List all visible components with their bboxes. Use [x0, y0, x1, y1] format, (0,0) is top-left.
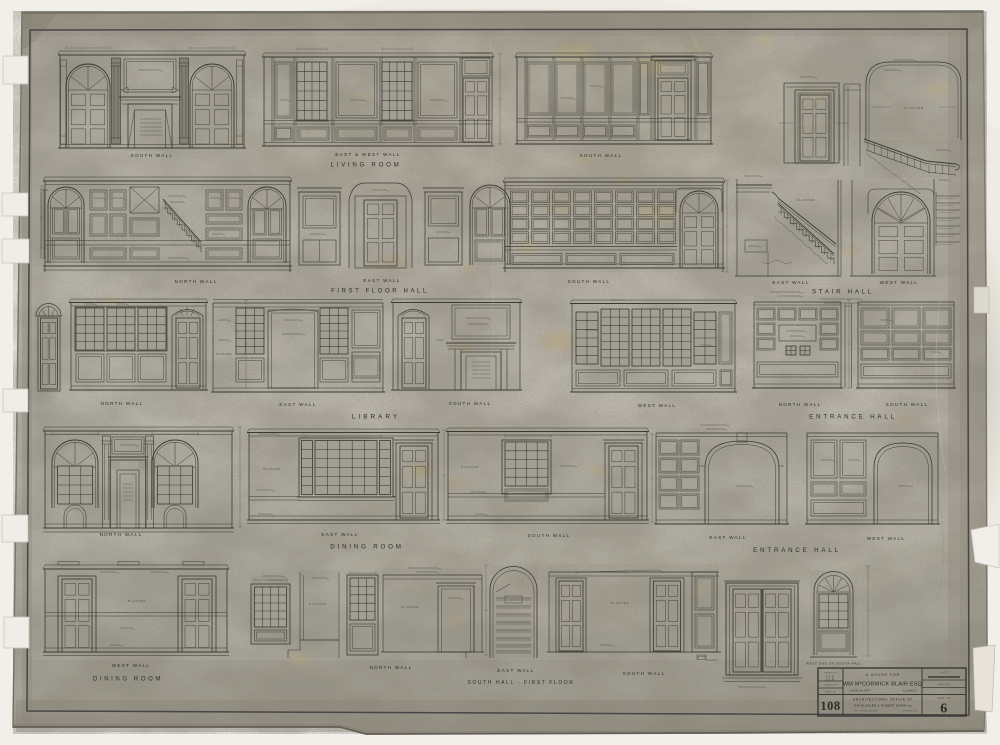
svg-text:EAST & WEST WALL: EAST & WEST WALL [335, 152, 400, 157]
svg-text:WM MºCORMICK BLAIR ESQ: WM MºCORMICK BLAIR ESQ [843, 681, 923, 688]
svg-text:PLASTER: PLASTER [611, 601, 629, 605]
svg-text:WEST WALL: WEST WALL [880, 280, 919, 285]
svg-text:PLASTER: PLASTER [904, 106, 924, 110]
svg-text:NORTH WALL: NORTH WALL [370, 665, 413, 670]
svg-text:SOUTH HALL - FIRST FLOOR: SOUTH HALL - FIRST FLOOR [467, 680, 574, 686]
svg-text:LIVING ROOM: LIVING ROOM [331, 162, 402, 169]
svg-text:STAIR HALL: STAIR HALL [812, 289, 874, 296]
svg-text:SOUTH WALL: SOUTH WALL [528, 533, 571, 538]
svg-text:6: 6 [940, 702, 948, 717]
svg-text:SOUTH WALL: SOUTH WALL [580, 153, 623, 158]
svg-text:SOUTH WALL: SOUTH WALL [623, 671, 666, 676]
svg-text:DAVID ADLER & ROBERT WORK Inc: DAVID ADLER & ROBERT WORK Inc [854, 704, 912, 708]
svg-text:ENTRANCE HALL: ENTRANCE HALL [753, 547, 841, 554]
svg-text:EAST WALL: EAST WALL [321, 532, 358, 537]
svg-text:ILLINOIS: ILLINOIS [903, 689, 916, 693]
svg-text:612 N MICHIGAN AVE: 612 N MICHIGAN AVE [854, 710, 878, 713]
svg-text:EAST WALL: EAST WALL [363, 278, 400, 283]
svg-text:WEST WALL: WEST WALL [638, 403, 677, 408]
svg-text:NORTH WALL: NORTH WALL [101, 401, 144, 406]
svg-text:EAST WALL: EAST WALL [709, 535, 746, 540]
svg-text:FIRST FLOOR HALL: FIRST FLOOR HALL [331, 289, 429, 295]
svg-text:ARCHITECTURAL OFFICE OF: ARCHITECTURAL OFFICE OF [853, 698, 913, 702]
svg-text:SOUTH WALL: SOUTH WALL [886, 402, 929, 407]
svg-text:NORTH WALL: NORTH WALL [779, 402, 822, 407]
svg-text:J.E.R.: J.E.R. [825, 678, 835, 682]
svg-text:LAKE BLUFF: LAKE BLUFF [849, 689, 870, 693]
svg-text:SHEET NO: SHEET NO [937, 698, 950, 700]
svg-text:PLASTER: PLASTER [461, 465, 478, 469]
svg-text:DINING ROOM: DINING ROOM [93, 677, 163, 683]
svg-text:WEST WALL: WEST WALL [112, 663, 151, 668]
svg-text:DINING ROOM: DINING ROOM [330, 544, 403, 551]
svg-text:WEST END OF SOUTH HALL: WEST END OF SOUTH HALL [806, 662, 862, 666]
svg-text:PLASTER: PLASTER [309, 602, 326, 606]
svg-text:A HOUSE FOR: A HOUSE FOR [866, 673, 900, 677]
svg-text:DATE: DATE [940, 672, 948, 675]
svg-text:CHECKED BY: CHECKED BY [823, 685, 838, 687]
svg-text:PLASTER: PLASTER [401, 605, 419, 609]
svg-text:SOUTH WALL: SOUTH WALL [131, 153, 174, 158]
svg-text:PLASTER: PLASTER [128, 599, 146, 603]
svg-text:WEST WALL: WEST WALL [867, 536, 906, 541]
svg-text:EAST WALL: EAST WALL [497, 668, 534, 673]
svg-text:108: 108 [820, 699, 840, 713]
svg-text:REVISED: REVISED [938, 684, 951, 687]
svg-text:ENTRANCE HALL: ENTRANCE HALL [809, 414, 897, 421]
svg-text:PLASTER: PLASTER [216, 352, 232, 356]
svg-text:SCALE NO: SCALE NO [825, 691, 837, 694]
svg-text:NORTH WALL: NORTH WALL [100, 532, 143, 537]
svg-text:EAST WALL: EAST WALL [772, 280, 809, 285]
svg-text:EAST WALL: EAST WALL [279, 402, 316, 407]
svg-text:CHICAGO ILL: CHICAGO ILL [903, 710, 919, 713]
svg-text:PLASTER: PLASTER [797, 198, 815, 202]
svg-text:PLASTER: PLASTER [263, 467, 280, 471]
svg-text:NORTH WALL: NORTH WALL [175, 279, 218, 284]
svg-text:SOUTH WALL: SOUTH WALL [449, 401, 492, 406]
svg-text:LIBRARY: LIBRARY [352, 414, 400, 421]
svg-text:SOUTH WALL: SOUTH WALL [568, 279, 611, 284]
